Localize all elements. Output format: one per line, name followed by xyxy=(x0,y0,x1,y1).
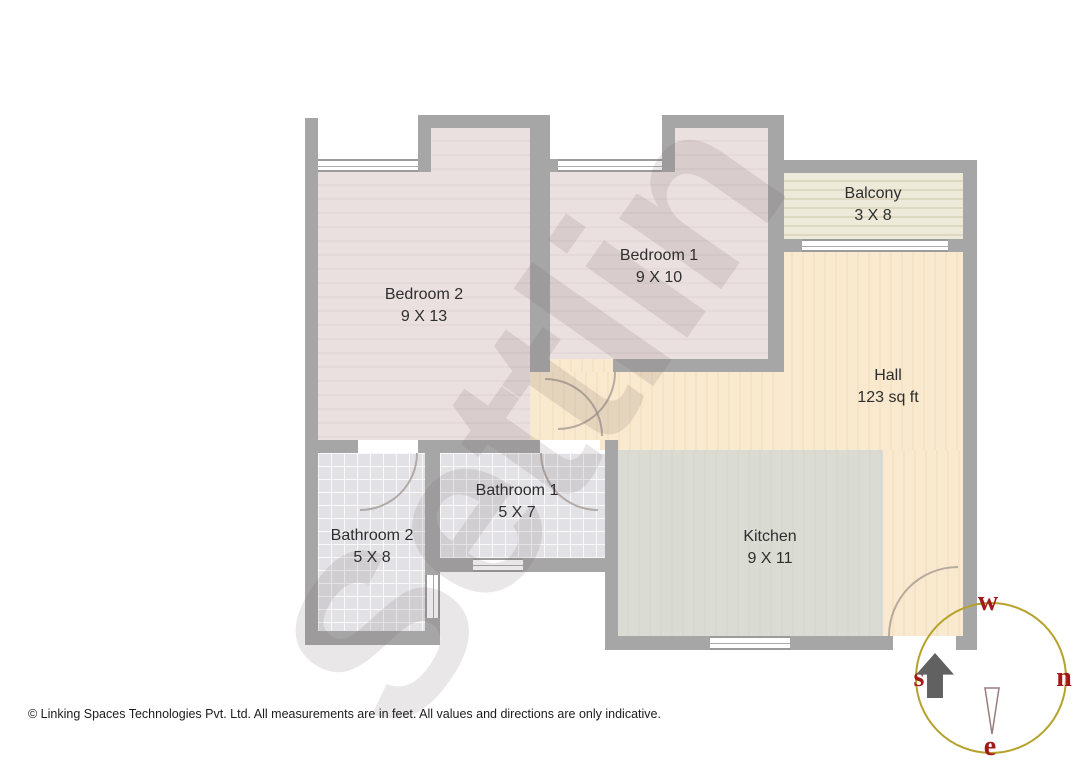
hall-label: Hall 123 sq ft xyxy=(803,365,973,410)
compass-west-label: w xyxy=(978,586,998,618)
bathroom1-name: Bathroom 1 xyxy=(432,480,602,502)
balcony-label: Balcony 3 X 8 xyxy=(788,183,958,228)
wall-balcony-top xyxy=(770,160,977,173)
bedroom1-label: Bedroom 1 9 X 10 xyxy=(574,245,744,290)
kitchen-window xyxy=(710,636,790,650)
wall-bedroom2-notch-top xyxy=(418,115,543,128)
kitchen-name: Kitchen xyxy=(685,526,855,548)
balcony-name: Balcony xyxy=(788,183,958,205)
balcony-sliding-window xyxy=(802,239,948,252)
balcony-dimensions: 3 X 8 xyxy=(788,205,958,227)
bedroom2-label: Bedroom 2 9 X 13 xyxy=(339,284,509,329)
bedroom2-floor-notch xyxy=(431,128,530,174)
hall-name: Hall xyxy=(803,365,973,387)
bathroom1-label: Bathroom 1 5 X 7 xyxy=(432,480,602,525)
bedroom1-name: Bedroom 1 xyxy=(574,245,744,267)
bathroom2-dimensions: 5 X 8 xyxy=(287,547,457,569)
floor-plan-canvas: Settlin Bedroom 2 9 X 13 Bedroom 1 9 X 1… xyxy=(0,0,1080,764)
bedroom1-dimensions: 9 X 10 xyxy=(574,267,744,289)
wall-bedroom2-notch-left xyxy=(418,115,431,172)
footer-copyright: © Linking Spaces Technologies Pvt. Ltd. … xyxy=(28,707,661,721)
compass-needle-icon xyxy=(984,686,1000,736)
bathroom1-dimensions: 5 X 7 xyxy=(432,502,602,524)
bathroom2-name: Bathroom 2 xyxy=(287,525,457,547)
compass-north-label: n xyxy=(1056,662,1072,694)
bathroom2-label: Bathroom 2 5 X 8 xyxy=(287,525,457,570)
wall-balcony-bottom-right-stub xyxy=(948,239,963,252)
kitchen-label: Kitchen 9 X 11 xyxy=(685,526,855,571)
hall-floor xyxy=(782,252,963,450)
hall-dimensions: 123 sq ft xyxy=(803,387,973,409)
bedroom2-name: Bedroom 2 xyxy=(339,284,509,306)
kitchen-dimensions: 9 X 11 xyxy=(685,548,855,570)
compass-south-label: s xyxy=(914,662,925,694)
bedroom2-window xyxy=(318,159,418,172)
bedroom2-dimensions: 9 X 13 xyxy=(339,306,509,328)
